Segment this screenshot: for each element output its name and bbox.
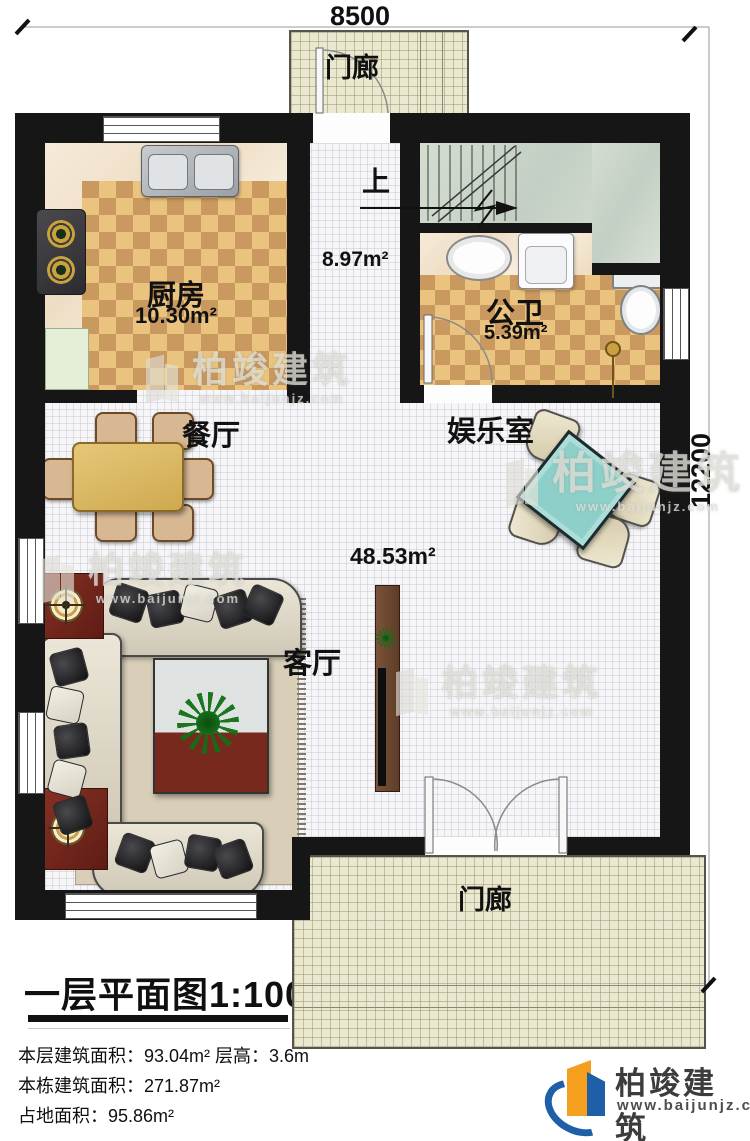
dining-label: 餐厅	[182, 412, 240, 454]
wall-kitchen-bottom	[15, 390, 137, 403]
cabinet-plant	[376, 628, 396, 648]
stove-burner	[47, 256, 75, 284]
door-opening-top	[313, 113, 390, 143]
porch-step-line	[294, 985, 704, 986]
stairwell-landing-floor	[592, 143, 660, 265]
kitchen-area: 10.30m²	[135, 303, 217, 329]
logo-building-blue	[587, 1072, 605, 1116]
wall-landing-bath	[592, 263, 660, 275]
door-opening-bath	[424, 385, 492, 403]
toilet-bowl	[620, 285, 662, 335]
washer-door	[525, 246, 567, 284]
sink-basin	[194, 154, 234, 190]
living-area: 48.53m²	[350, 543, 436, 570]
window-left-2	[18, 712, 44, 794]
window-bathroom	[663, 288, 689, 360]
porch-step-line	[420, 32, 421, 117]
porch-step-line	[294, 1007, 704, 1008]
title-underline-thin	[28, 1028, 290, 1029]
info-line-1: 本层建筑面积：93.04m² 层高：3.6m	[18, 1042, 309, 1068]
bathroom-area: 5.39m²	[484, 322, 547, 345]
floor-plan: 8500 12200	[0, 0, 750, 1141]
kitchen-sink	[141, 145, 239, 197]
window-living	[65, 893, 257, 919]
bathroom-sink	[446, 235, 512, 281]
porch-bottom-label: 门廊	[458, 878, 512, 917]
dimension-top-label: 8500	[330, 1, 390, 32]
plan-title: 一层平面图1:100	[24, 966, 306, 1018]
stove-burner	[47, 220, 75, 248]
kitchen-stove	[36, 209, 86, 295]
dining-table	[72, 442, 184, 512]
porch-top-floor	[289, 30, 469, 119]
table-lamp	[48, 587, 84, 623]
wall-kitchen-right	[287, 113, 310, 403]
pillow	[53, 722, 91, 760]
info-line-3: 占地面积：95.86m²	[18, 1102, 174, 1128]
coffee-table-plant	[177, 692, 239, 754]
wall-stair-bath	[420, 223, 592, 233]
dimension-right-label: 12200	[686, 433, 717, 508]
tv-screen	[378, 668, 386, 786]
door-opening-entry	[425, 837, 567, 855]
porch-top-label: 门廊	[325, 46, 379, 85]
porch-step-line	[442, 32, 443, 117]
living-label: 客厅	[283, 640, 341, 682]
hallway-area: 8.97m²	[322, 248, 389, 272]
title-underline	[28, 1015, 288, 1022]
stairs-up-label: 上	[362, 160, 390, 200]
pillow	[45, 685, 85, 725]
entertainment-label: 娱乐室	[447, 408, 534, 450]
wall-corner	[292, 837, 310, 920]
window-kitchen	[103, 116, 220, 142]
wall-stair-left	[400, 143, 420, 403]
company-url: www.baijunjz.com	[617, 1097, 750, 1114]
window-left-1	[18, 538, 44, 624]
kitchen-fridge	[45, 328, 89, 390]
washing-machine	[518, 233, 574, 289]
company-logo-icon	[545, 1058, 609, 1126]
info-line-2: 本栋建筑面积：271.87m²	[18, 1072, 220, 1098]
sink-basin	[148, 154, 188, 190]
